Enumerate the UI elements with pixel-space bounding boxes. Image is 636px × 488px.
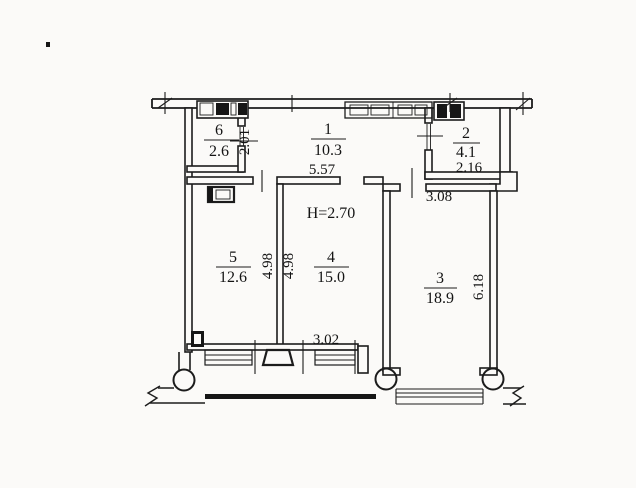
vent-block-room5-bottom (191, 331, 204, 347)
column-neck-left (179, 352, 190, 370)
wall-corridor-south-a (187, 177, 253, 184)
window-room4-icon (315, 350, 355, 365)
ceiling-height-note: H=2.70 (307, 205, 356, 222)
wall-room3-right (490, 191, 497, 371)
dim-room3-entry: 3.08 (426, 189, 452, 205)
wall-left-exterior (185, 108, 192, 352)
room1-number: 1 (324, 121, 332, 138)
room1-label: 1 10.3 (311, 121, 346, 159)
wall-corridor-south-c (364, 177, 383, 184)
window-room5-panes (205, 355, 252, 360)
room3-label: 3 18.9 (424, 270, 457, 307)
room5-number: 5 (229, 249, 237, 266)
floor-plan-drawing: 6 2.6 2.01 1 10.3 5.57 2 4.1 2.16 3.08 H… (0, 0, 636, 488)
vent-block-room2 (434, 102, 464, 120)
dim-room5-depth: 4.98 (260, 253, 276, 279)
floor-plan-page: 6 2.6 2.01 1 10.3 5.57 2 4.1 2.16 3.08 H… (0, 0, 636, 488)
room5-area: 12.6 (219, 269, 247, 286)
wall-room2-left-upper (425, 108, 432, 123)
dim-hall-width: 5.57 (309, 162, 336, 178)
window-room4-panes (315, 355, 355, 360)
room2-width-dim: 2.16 (456, 160, 483, 176)
room5-label: 5 12.6 (216, 249, 251, 286)
wall-room3-top-a (383, 184, 400, 191)
closet-hall (345, 102, 432, 118)
room4-number: 4 (327, 249, 335, 266)
labels: 6 2.6 2.01 1 10.3 5.57 2 4.1 2.16 3.08 H… (204, 121, 487, 348)
door-room2-jambs (427, 124, 431, 150)
room1-area: 10.3 (314, 142, 342, 159)
dimension-ticks (46, 42, 530, 374)
wall-room2-right (500, 108, 510, 172)
room6-area: 2.6 (209, 143, 229, 160)
wall-corridor-south-b (277, 177, 340, 184)
room4-area: 15.0 (317, 269, 345, 286)
room2-area: 4.1 (456, 144, 476, 161)
tick-top-4 (516, 92, 530, 115)
wall-room6-bottom (187, 166, 243, 172)
vent-block-room6 (197, 101, 248, 118)
balcony-pier (263, 350, 293, 365)
room4-label: 4 15.0 (314, 249, 349, 286)
wall-pillar-room4-room3 (358, 346, 368, 373)
dim-closet-wall: 2.01 (237, 129, 253, 155)
dim-room4-depth: 4.98 (281, 253, 297, 279)
balcony-parapet (205, 394, 376, 399)
dim-room4-width: 3.02 (313, 332, 339, 348)
dim-room3-depth: 6.18 (471, 274, 487, 300)
room6-number: 6 (215, 122, 223, 139)
room2-label: 2 4.1 2.16 (453, 125, 483, 176)
window-loggia-room3 (396, 389, 483, 404)
vent-block-room5-top (208, 187, 234, 202)
tick-top-1 (158, 92, 172, 114)
break-line-right (510, 386, 524, 406)
window-room5-icon (205, 350, 252, 365)
column-left (174, 370, 195, 391)
room3-area: 18.9 (426, 290, 454, 307)
balcony-slab-left (150, 388, 205, 403)
room2-number: 2 (462, 125, 470, 142)
scan-speck (46, 42, 50, 47)
wall-room3-left (383, 191, 390, 371)
room3-number: 3 (436, 270, 444, 287)
balcony-slab-right (503, 388, 526, 404)
